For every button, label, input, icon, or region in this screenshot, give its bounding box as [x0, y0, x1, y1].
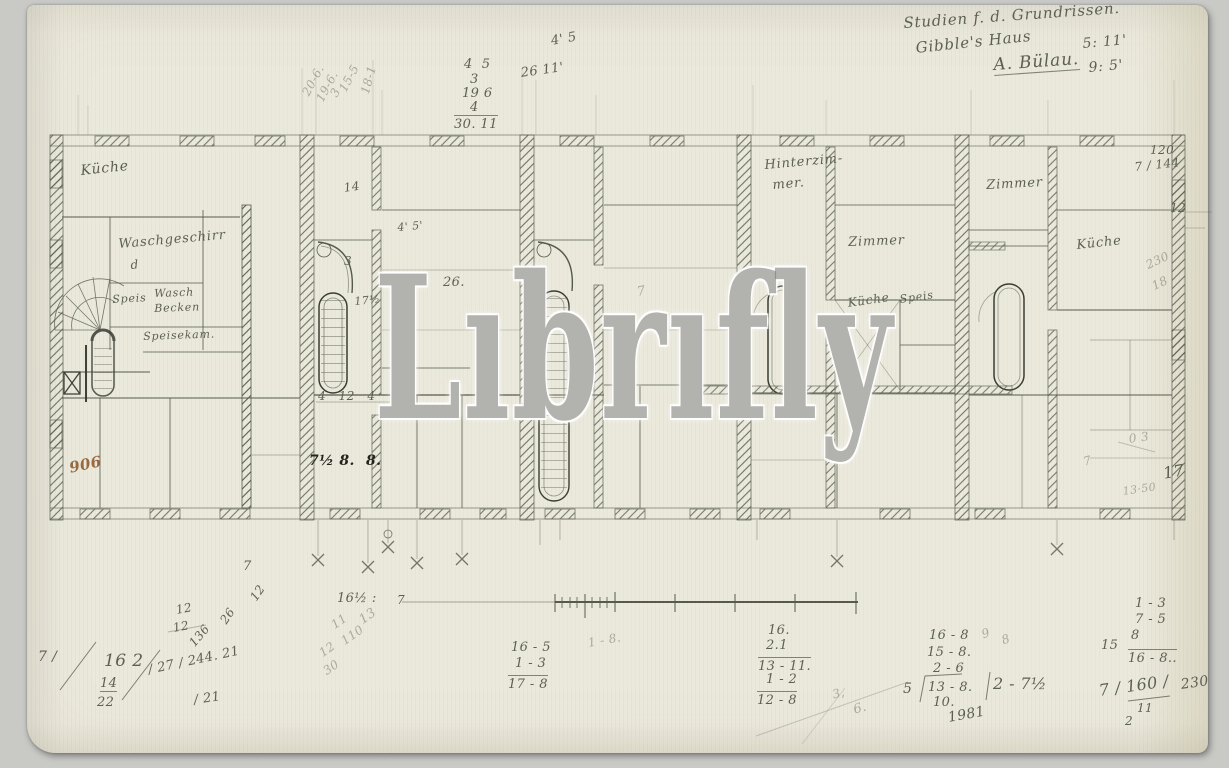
- title-signature: A. Bülau.: [993, 51, 1080, 76]
- annotation: 1 - 2: [766, 673, 797, 686]
- annotation: 0 3: [1128, 430, 1150, 445]
- margin-number: 120: [1150, 144, 1174, 156]
- annotation: 18-1: [359, 64, 378, 95]
- annotation: 30: [321, 658, 341, 677]
- title-dimension-a: 5: 11': [1082, 33, 1128, 51]
- annotation: 12: [317, 640, 337, 659]
- calc-top-middle: 4 5: [464, 58, 490, 71]
- calc-bottom-center: 16.: [768, 624, 790, 637]
- annotation: mer.: [772, 176, 805, 192]
- watermark: Lıbrıfly: [374, 250, 893, 448]
- annotation: 7 /: [38, 650, 57, 664]
- annotation: 17: [1162, 462, 1186, 481]
- annotation: 1 - 3: [515, 657, 546, 670]
- annotation: 11: [1137, 702, 1153, 714]
- annotation: 15-5: [337, 63, 361, 94]
- annotation: 3: [344, 255, 352, 267]
- annotation: 2 - 6: [933, 662, 964, 675]
- annotation: Becken: [154, 301, 200, 314]
- annotation: 12: [1170, 202, 1186, 214]
- annotation: 7: [397, 594, 405, 606]
- annotation: 13·50: [1122, 481, 1157, 497]
- result-highlight: 2 - 7½: [993, 676, 1047, 692]
- annotation: 230: [1144, 250, 1171, 271]
- annotation: 6.: [852, 701, 868, 717]
- annotation: 26 11': [520, 61, 565, 80]
- annotation: 3,: [831, 686, 846, 701]
- annotation: 7: [243, 560, 252, 573]
- annotation: 7: [1082, 454, 1093, 468]
- annotation: / 21: [193, 690, 221, 707]
- annotation: 30. 11: [454, 115, 498, 131]
- annotation: 9: [980, 626, 992, 640]
- annotation: d: [130, 258, 139, 271]
- annotation: 14: [100, 677, 117, 692]
- annotation: 19 6: [462, 87, 493, 100]
- annotation: 13 - 8.: [928, 681, 972, 694]
- annotation: 12: [248, 583, 267, 603]
- room-label-waschgeschirr: Waschgeschirr: [118, 229, 226, 251]
- annotation: 4: [470, 101, 479, 114]
- annotation: 14: [343, 180, 361, 194]
- annotation: 12: [175, 601, 193, 616]
- annotation: 18: [1150, 274, 1170, 292]
- annotation: 2: [1125, 715, 1133, 727]
- annotation: 1 - 8.: [587, 631, 622, 649]
- annotation: 15: [1101, 639, 1118, 652]
- number-sepia-906: 906: [68, 454, 103, 475]
- annotation: 4 12 4: [318, 390, 375, 402]
- annotation: 7 - 5: [1135, 613, 1166, 626]
- title-line1: Studien f. d. Grundrissen.: [903, 1, 1120, 31]
- room-label-hinterzimmer: Hinterzim-: [764, 152, 844, 172]
- annotation: 4' 5': [397, 220, 423, 233]
- calc-far-right: 1 - 3: [1135, 597, 1166, 610]
- room-label-speis-2: Speis: [899, 289, 934, 305]
- scale-label: 16½ :: [337, 592, 377, 605]
- annotation: 26: [218, 606, 237, 626]
- room-label-kueche-3: Küche: [1076, 234, 1122, 252]
- annotation: 2.1: [766, 639, 788, 652]
- annotation: 136: [187, 623, 212, 649]
- annotation: 11: [329, 612, 349, 631]
- annotation: 22: [97, 696, 114, 709]
- scan-background: Studien f. d. Grundrissen.Gibble's Haus5…: [0, 0, 1229, 768]
- room-label-kueche-1: Küche: [80, 159, 130, 178]
- annotation: 4' 5: [550, 31, 578, 48]
- title-dimension-b: 9: 5': [1088, 58, 1124, 75]
- room-label-wasch: Wasch: [154, 287, 194, 299]
- title-line2: Gibble's Haus: [915, 29, 1032, 56]
- room-label-zimmer-2: Zimmer: [986, 176, 1043, 192]
- calc-bottom-left: 16 2: [104, 653, 143, 670]
- annotation: 16 - 8..: [1128, 649, 1177, 665]
- dim-ink-1: 7½ 8.: [309, 454, 355, 468]
- annotation: 8: [1131, 629, 1140, 642]
- annotation: 230: [1180, 674, 1210, 692]
- annotation: 12: [172, 619, 190, 634]
- annotation: / 27 / 244. 21: [147, 645, 241, 677]
- annotation: 17 - 8: [508, 675, 548, 691]
- annotation: 15 - 8.: [927, 646, 971, 659]
- annotation: 3: [470, 73, 479, 86]
- annotation: 7 / 144: [1134, 156, 1180, 173]
- annotation: 13 - 11.: [758, 657, 811, 673]
- calc-bottom-right: 16 - 8: [929, 629, 969, 642]
- annotation: 5: [903, 682, 912, 696]
- annotation: 7 / 160 /: [1098, 673, 1170, 699]
- annotation: 12 - 8: [757, 691, 797, 707]
- annotation: 10.: [933, 696, 955, 709]
- calc-bottom-mid: 16 - 5: [511, 641, 551, 654]
- room-label-speisekammer: Speisekam.: [143, 328, 215, 342]
- annotation: 8: [1000, 632, 1012, 646]
- annotation: 13: [357, 606, 379, 627]
- room-label-speis-1: Speis: [112, 292, 147, 305]
